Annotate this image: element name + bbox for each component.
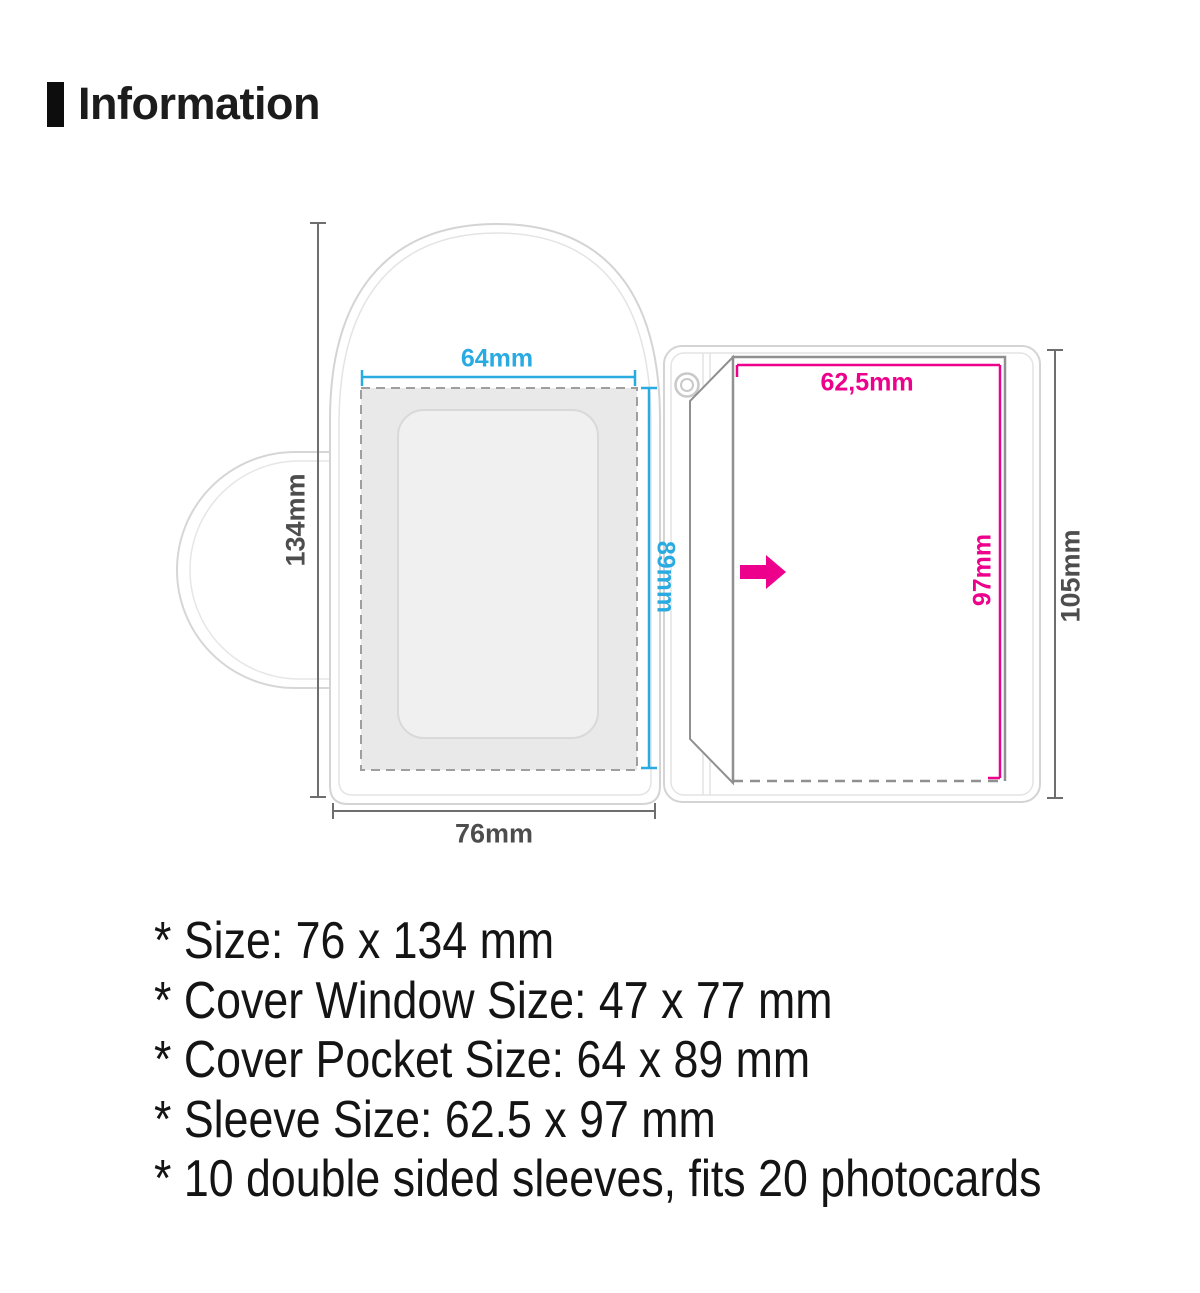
cover-window-area bbox=[398, 410, 598, 738]
spec-cover-pocket-size: * Cover Pocket Size: 64 x 89 mm bbox=[154, 1031, 1042, 1091]
dim-label-page-height: 105mm bbox=[1056, 529, 1087, 622]
dim-label-cover-pocket-height: 89mm bbox=[651, 541, 680, 613]
sleeve-flap bbox=[690, 357, 733, 783]
spec-size: * Size: 76 x 134 mm bbox=[154, 912, 1042, 972]
binder-ring-hole-icon bbox=[676, 374, 699, 397]
dimension-diagram: 64mm 89mm 134mm 62,5mm 97mm 105mm 76mm bbox=[0, 0, 1200, 880]
dim-label-sleeve-width: 62,5mm bbox=[820, 369, 913, 398]
spec-sleeve-count: * 10 double sided sleeves, fits 20 photo… bbox=[154, 1150, 1042, 1210]
dim-label-cover-pocket-width: 64mm bbox=[461, 345, 533, 374]
spec-sleeve-size: * Sleeve Size: 62.5 x 97 mm bbox=[154, 1091, 1042, 1151]
dim-label-sleeve-height: 97mm bbox=[969, 534, 998, 606]
product-information-page: Information bbox=[0, 0, 1200, 1293]
spec-cover-window-size: * Cover Window Size: 47 x 77 mm bbox=[154, 972, 1042, 1032]
dim-label-cover-width: 76mm bbox=[455, 819, 533, 850]
dim-label-cover-height: 134mm bbox=[281, 473, 312, 566]
specs-list: * Size: 76 x 134 mm * Cover Window Size:… bbox=[154, 912, 1042, 1210]
diagram-line-art bbox=[0, 0, 1200, 880]
sleeve-outline bbox=[690, 357, 1005, 783]
